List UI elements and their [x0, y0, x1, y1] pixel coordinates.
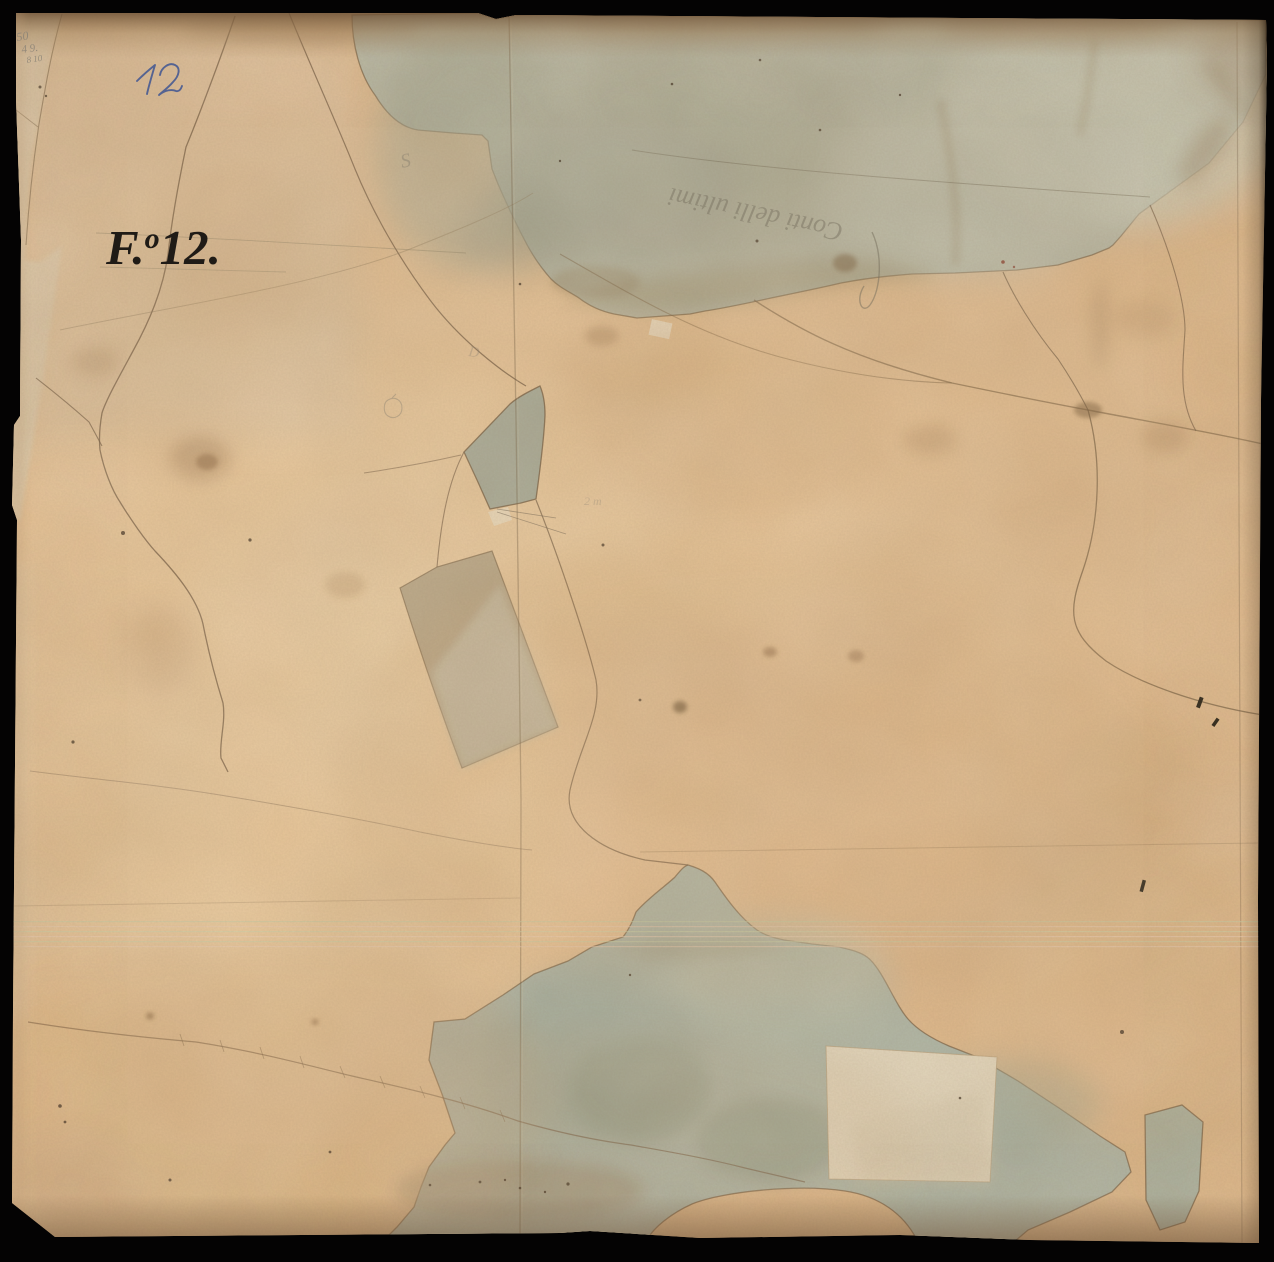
svg-text:D: D	[466, 344, 480, 362]
svg-text:2 m: 2 m	[584, 494, 602, 508]
svg-text:50: 50	[15, 28, 29, 44]
svg-text:F.o12.: F.o12.	[105, 220, 221, 275]
